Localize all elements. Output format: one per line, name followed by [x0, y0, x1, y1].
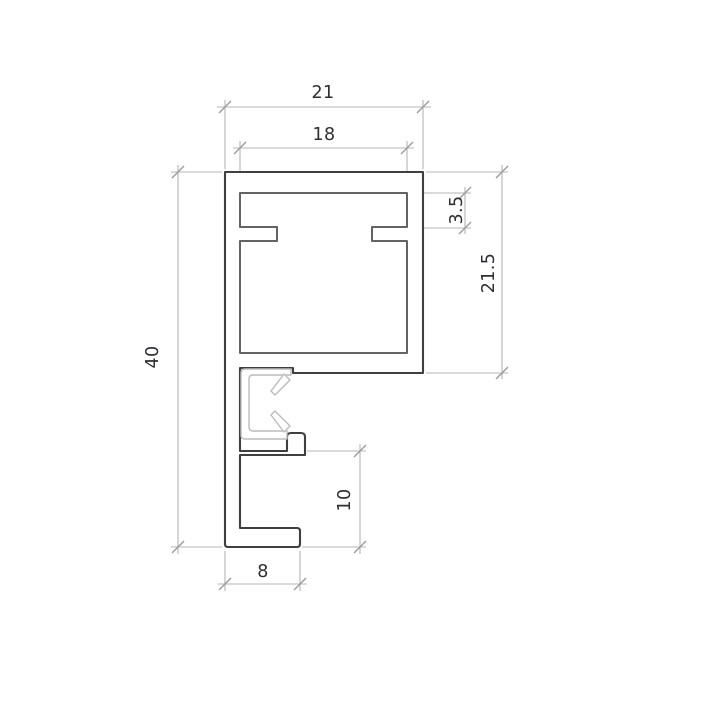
dimension-8-label: 8	[257, 562, 269, 582]
inner-cavity-outline	[240, 193, 407, 353]
dimension-21-label: 21	[311, 83, 334, 103]
dimension-21-5-label: 21.5	[479, 253, 499, 294]
dimension-bottom-channel-height: 10	[302, 444, 366, 554]
dimension-top-box-height: 21.5	[426, 165, 508, 379]
drawing-canvas: 21 18 3.5 21.5 40	[0, 0, 714, 722]
dimension-10-label: 10	[335, 488, 355, 511]
profile-drawing: 21 18 3.5 21.5 40	[0, 0, 714, 722]
dimension-18-label: 18	[312, 125, 335, 145]
dimension-total-height: 40	[143, 165, 222, 554]
clip-tooth-upper	[271, 374, 290, 395]
dimension-bottom-width: 8	[218, 551, 307, 591]
dimension-40-label: 40	[143, 345, 163, 368]
dimension-3-5-label: 3.5	[447, 195, 467, 224]
clip-tooth-lower	[271, 411, 290, 432]
